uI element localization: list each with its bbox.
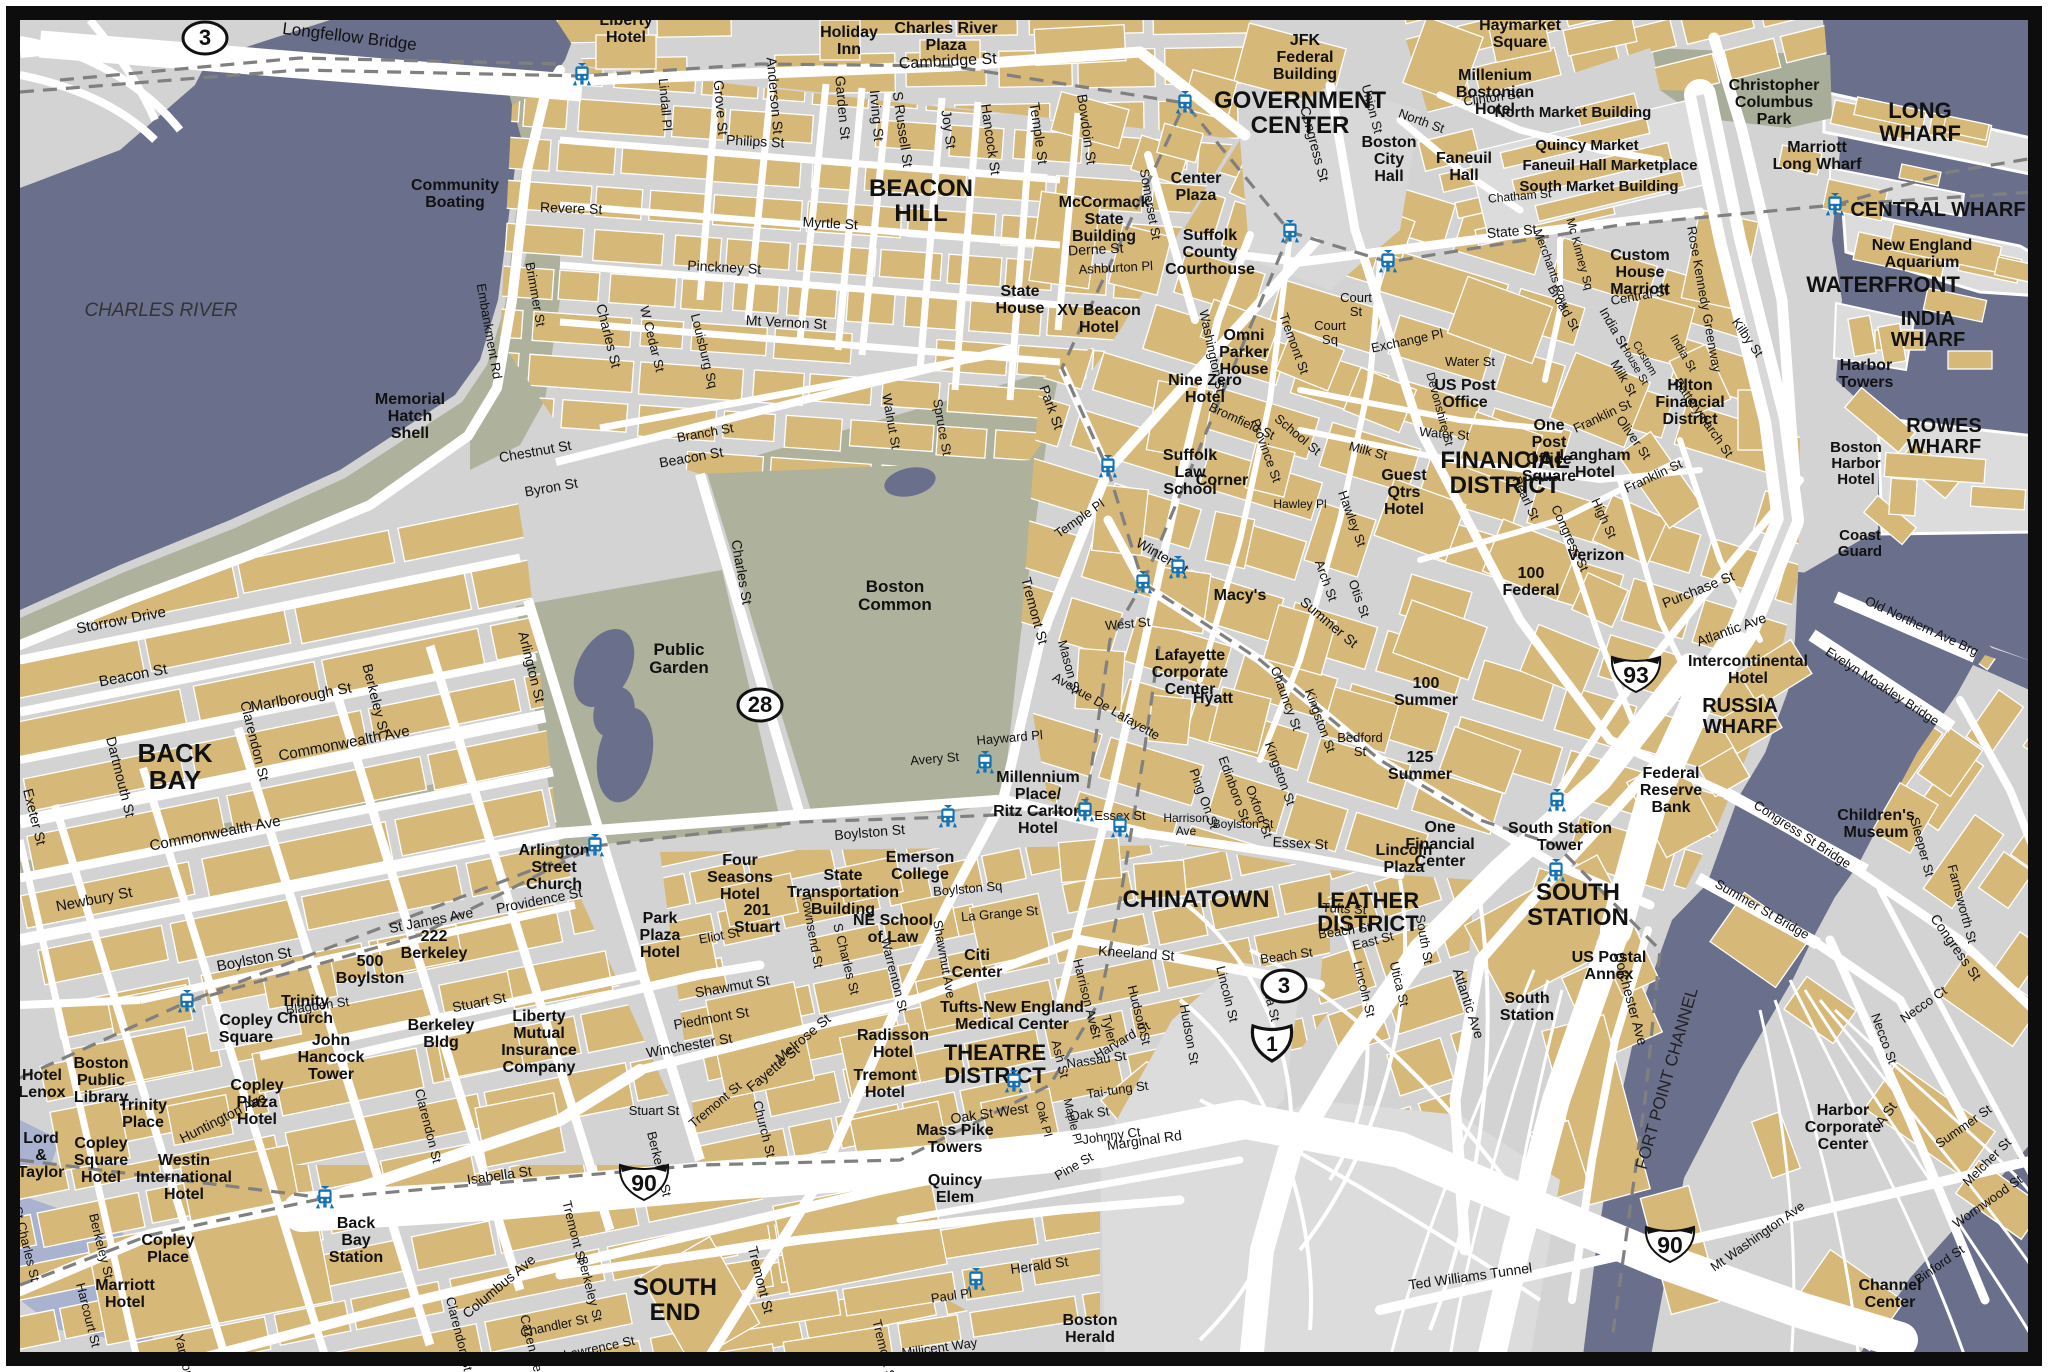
svg-text:BostonHarborHotel: BostonHarborHotel bbox=[1830, 439, 1882, 488]
svg-text:SOUTHSTATION: SOUTHSTATION bbox=[1527, 879, 1629, 931]
svg-text:ROWESWHARF: ROWESWHARF bbox=[1906, 415, 1982, 458]
svg-text:Stuart St: Stuart St bbox=[629, 1103, 680, 1118]
svg-text:Philips St: Philips St bbox=[726, 131, 785, 150]
svg-text:Hawley Pl: Hawley Pl bbox=[1273, 497, 1326, 511]
svg-text:INDIAWHARF: INDIAWHARF bbox=[1891, 308, 1965, 351]
svg-text:28: 28 bbox=[748, 692, 772, 717]
svg-text:Essex St: Essex St bbox=[1272, 834, 1328, 853]
svg-text:93: 93 bbox=[1623, 662, 1649, 688]
svg-text:CopleyPlace: CopleyPlace bbox=[141, 1232, 194, 1266]
svg-text:Tufts St: Tufts St bbox=[1322, 900, 1367, 917]
svg-text:North Market Building: North Market Building bbox=[1495, 104, 1652, 121]
svg-text:OmniParkerHouse: OmniParkerHouse bbox=[1219, 327, 1269, 378]
svg-text:ChannelCenter: ChannelCenter bbox=[1858, 1277, 1921, 1311]
svg-text:WATERFRONT: WATERFRONT bbox=[1806, 272, 1960, 297]
svg-text:3: 3 bbox=[199, 25, 211, 50]
svg-text:BostonCommon: BostonCommon bbox=[858, 577, 932, 614]
svg-text:TrinityPlace: TrinityPlace bbox=[119, 1097, 167, 1131]
svg-text:Myrtle St: Myrtle St bbox=[802, 214, 858, 233]
svg-text:Revere St: Revere St bbox=[540, 199, 603, 217]
svg-text:CHARLES RIVER: CHARLES RIVER bbox=[84, 300, 237, 321]
svg-text:90: 90 bbox=[631, 1170, 657, 1196]
svg-text:Corner: Corner bbox=[1196, 472, 1248, 489]
svg-text:Macy's: Macy's bbox=[1214, 587, 1267, 604]
svg-text:3: 3 bbox=[1278, 973, 1290, 998]
svg-text:ParkPlazaHotel: ParkPlazaHotel bbox=[640, 910, 681, 961]
svg-text:PublicGarden: PublicGarden bbox=[649, 640, 709, 677]
svg-text:Faneuil Hall Marketplace: Faneuil Hall Marketplace bbox=[1522, 157, 1697, 174]
svg-text:1: 1 bbox=[1266, 1033, 1278, 1056]
svg-text:Quincy Market: Quincy Market bbox=[1535, 137, 1638, 154]
svg-text:CHINATOWN: CHINATOWN bbox=[1122, 886, 1269, 913]
svg-text:CoastGuard: CoastGuard bbox=[1838, 527, 1882, 560]
svg-text:BostonHerald: BostonHerald bbox=[1062, 1312, 1117, 1346]
svg-text:RUSSIAWHARF: RUSSIAWHARF bbox=[1702, 695, 1778, 738]
svg-text:Water St: Water St bbox=[1445, 354, 1495, 369]
svg-text:Tufts-New EnglandMedical Cente: Tufts-New EnglandMedical Center bbox=[940, 999, 1084, 1033]
svg-text:CENTRAL WHARF: CENTRAL WHARF bbox=[1850, 199, 2025, 221]
svg-text:LONGWHARF: LONGWHARF bbox=[1879, 98, 1961, 146]
svg-text:Mass PikeTowers: Mass PikeTowers bbox=[916, 1122, 993, 1156]
svg-text:SouthStation: SouthStation bbox=[1500, 990, 1554, 1024]
svg-text:LibertyMutualInsuranceCompany: LibertyMutualInsuranceCompany bbox=[501, 1008, 577, 1076]
svg-text:LincolnPlaza: LincolnPlaza bbox=[1376, 842, 1433, 876]
svg-text:EmersonCollege: EmersonCollege bbox=[886, 849, 954, 883]
svg-text:New EnglandAquarium: New EnglandAquarium bbox=[1872, 237, 1972, 271]
svg-text:HotelLenox: HotelLenox bbox=[18, 1067, 65, 1101]
svg-text:Hyatt: Hyatt bbox=[1193, 690, 1234, 707]
svg-text:THEATREDISTRICT: THEATREDISTRICT bbox=[944, 1040, 1046, 1088]
svg-text:CenterPlaza: CenterPlaza bbox=[1171, 170, 1222, 204]
svg-text:Children'sMuseum: Children'sMuseum bbox=[1837, 807, 1915, 841]
svg-text:GuestQtrsHotel: GuestQtrsHotel bbox=[1381, 467, 1427, 518]
svg-text:90: 90 bbox=[1657, 1232, 1683, 1258]
svg-text:CopleySquareHotel: CopleySquareHotel bbox=[74, 1135, 128, 1186]
svg-text:HarborTowers: HarborTowers bbox=[1839, 357, 1894, 391]
svg-text:Derne St: Derne St bbox=[1068, 240, 1124, 259]
svg-text:StateHouse: StateHouse bbox=[996, 283, 1045, 317]
svg-text:CopleySquare: CopleySquare bbox=[219, 1012, 273, 1046]
svg-text:QuincyElem: QuincyElem bbox=[928, 1172, 982, 1206]
